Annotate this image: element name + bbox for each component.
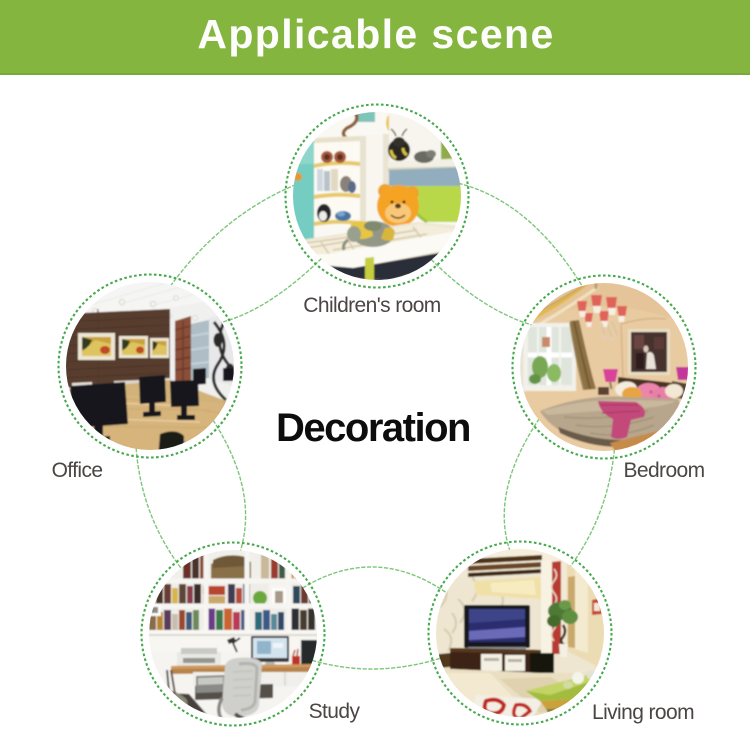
svg-text:Bedroom: Bedroom [623,459,704,482]
svg-text:Children's room: Children's room [303,294,441,317]
svg-text:Office: Office [52,459,103,482]
svg-text:Applicable scene: Applicable scene [197,11,554,57]
svg-text:Study: Study [309,700,361,723]
svg-text:Decoration: Decoration [276,406,470,450]
svg-text:Living room: Living room [592,701,694,724]
